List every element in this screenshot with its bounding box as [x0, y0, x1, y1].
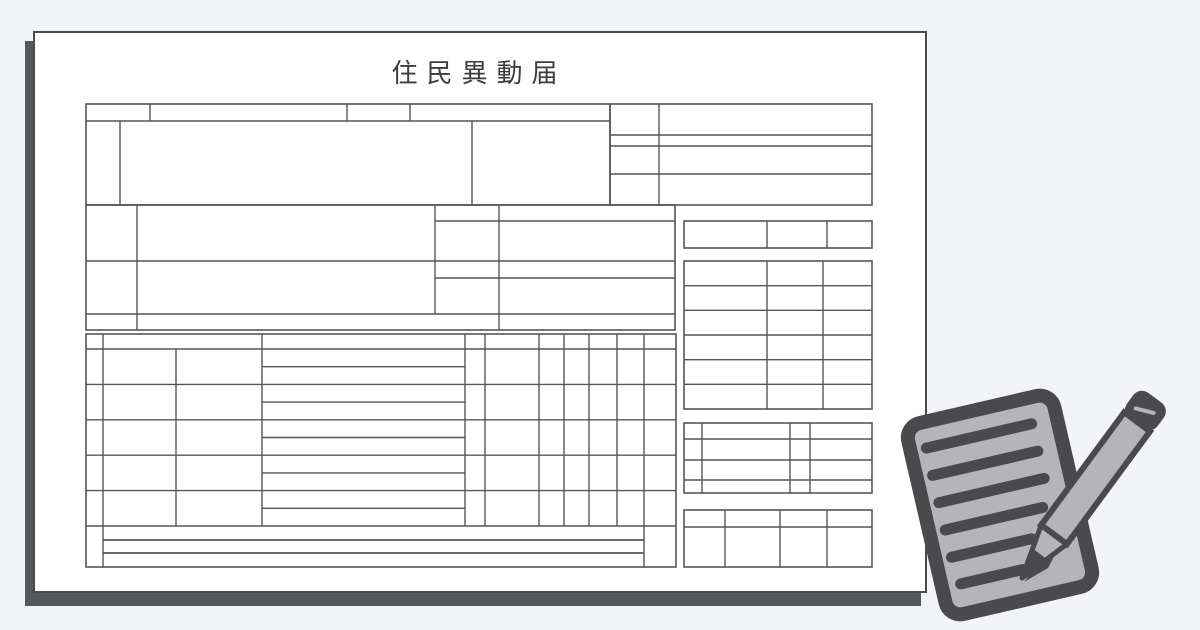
form-grid: [35, 33, 925, 591]
form-header-section: [86, 104, 610, 205]
form-right-stamp-grid: [684, 423, 872, 493]
form-paper: 住民異動届: [33, 31, 927, 593]
form-members-table: [86, 334, 676, 567]
pencil-shadow: [1024, 514, 1076, 582]
form-top-right-block: [610, 104, 872, 205]
form-right-table-4: [684, 510, 872, 567]
background: 住民異動届: [0, 0, 1200, 630]
pencil: [1007, 386, 1171, 589]
form-right-table-2: [684, 261, 872, 409]
form-address-section: [86, 205, 675, 330]
form-right-table-1: [684, 221, 872, 248]
memo-pad: [905, 393, 1095, 618]
